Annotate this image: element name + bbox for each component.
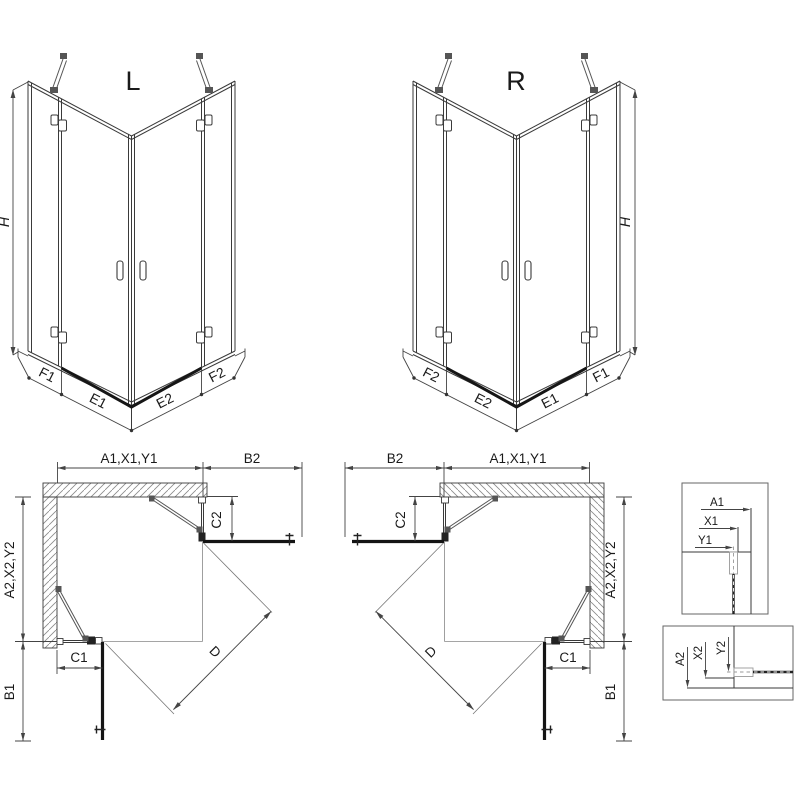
plan-right-left-fixed-dim: C2	[393, 511, 408, 528]
iso-left-dim-f1: F1	[36, 364, 58, 386]
detail-bottom-dim-a2: A2	[675, 652, 687, 666]
plan-left-bottom-door-dim: B1	[2, 684, 17, 701]
plan-left-diagonal-dim: D	[206, 643, 224, 661]
iso-view-left: L H F1 E1 E2 F2	[0, 53, 245, 432]
detail-top-dim-a1: A1	[710, 497, 724, 509]
plan-left-bottom-fixed-dim: C1	[70, 650, 87, 665]
plan-right-depth-dim: A2,X2,Y2	[603, 541, 618, 598]
plan-right-bottom-fixed-dim: C1	[559, 650, 576, 665]
plan-right-bottom-door-dim: B1	[603, 684, 618, 701]
detail-box-top: A1 X1 Y1	[682, 483, 768, 614]
detail-top-dim-x1: X1	[704, 516, 718, 528]
plan-right-diagonal-dim: D	[422, 643, 440, 661]
iso-left-height-dim-label: H	[0, 216, 12, 227]
plan-view-left: A1,X1,Y1 B2 C2 A2,X2,Y2 C1 B1 D	[2, 451, 302, 741]
iso-left-label: L	[125, 66, 140, 96]
iso-right-dim-f1: F1	[590, 364, 612, 386]
drawing-canvas: L H F1 E1 E2 F2 R H F2 E2 E1 F1 A1,X1,Y1…	[0, 0, 800, 800]
plan-left-depth-dim: A2,X2,Y2	[2, 541, 17, 598]
plan-left-right-fixed-dim: C2	[209, 511, 224, 528]
plan-view-right: B2 A1,X1,Y1 C2 A2,X2,Y2 C1 B1 D	[345, 451, 632, 741]
iso-right-label: R	[506, 66, 526, 96]
iso-view-right: R H F2 E2 E1 F1	[403, 53, 637, 432]
plan-left-top-width-dim: A1,X1,Y1	[100, 451, 157, 466]
detail-top-dim-y1: Y1	[698, 535, 712, 547]
technical-drawing-page: L H F1 E1 E2 F2 R H F2 E2 E1 F1 A1,X1,Y1…	[0, 0, 800, 800]
detail-bottom-dim-y2: Y2	[716, 641, 728, 655]
plan-right-top-width-dim: A1,X1,Y1	[489, 451, 546, 466]
detail-box-bottom: A2 X2 Y2	[663, 626, 793, 700]
plan-left-top-door-dim: B2	[244, 451, 261, 466]
iso-right-height-dim-label: H	[617, 216, 633, 227]
detail-bottom-dim-x2: X2	[693, 646, 705, 660]
plan-right-top-door-dim: B2	[387, 451, 404, 466]
